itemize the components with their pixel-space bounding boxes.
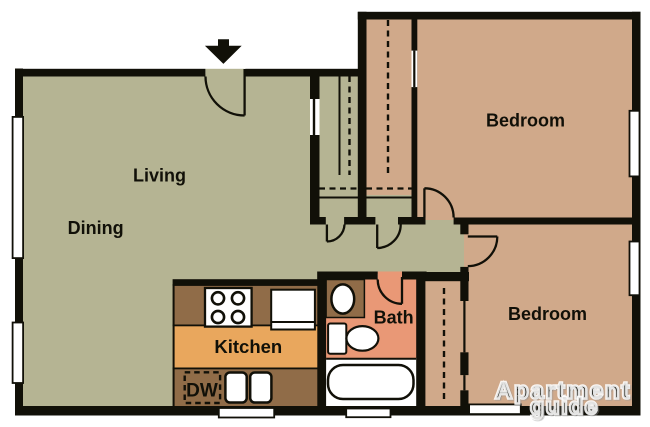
svg-text:Bedroom: Bedroom [508,304,587,324]
svg-text:Dining: Dining [68,218,124,238]
svg-text:DW: DW [186,380,218,401]
svg-text:Kitchen: Kitchen [214,336,282,357]
svg-text:Bath: Bath [374,308,414,328]
svg-text:Bedroom: Bedroom [486,110,565,130]
svg-text:guide: guide [530,393,599,419]
svg-text:Living: Living [133,166,186,186]
